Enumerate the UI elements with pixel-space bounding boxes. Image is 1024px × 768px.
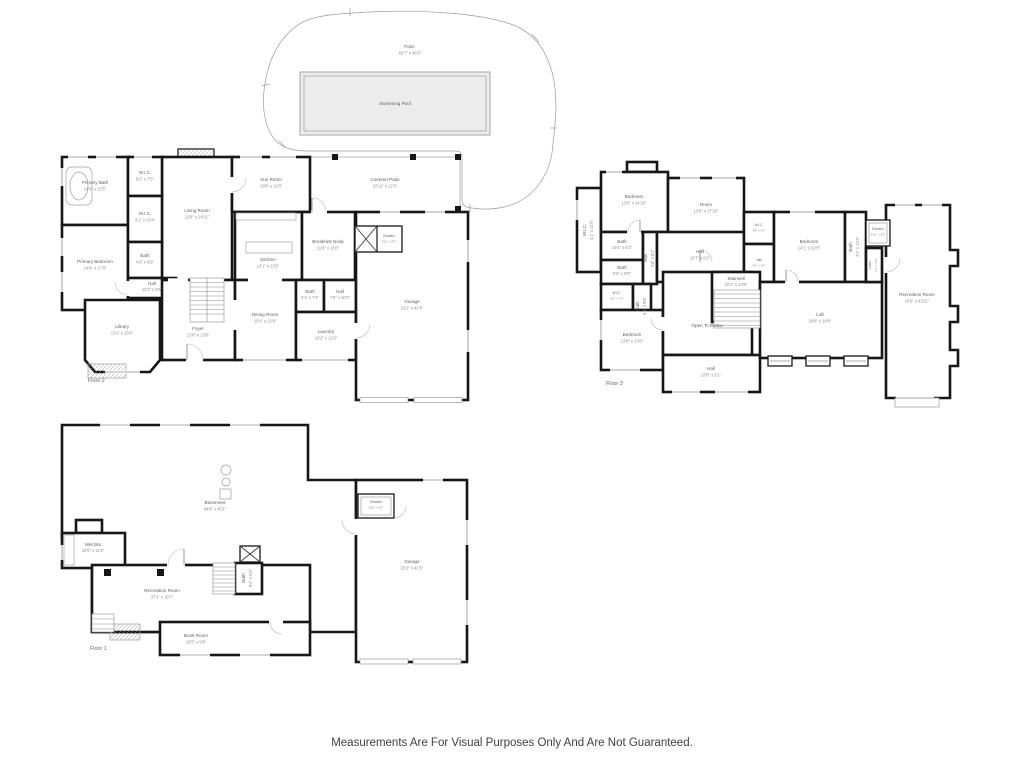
f2-elevator-label: Elevator6'10" x 5'4" (382, 234, 397, 244)
floor1-label: Floor 1 (90, 646, 107, 652)
f3-elevator-label: Elevator6'10" x 5'4" (871, 227, 886, 237)
water-heater-icon (221, 465, 231, 475)
f3-hall-vert-dims: 2'8" x 8'1" (650, 249, 655, 267)
f3-loft-bays (768, 356, 868, 366)
f2-living-room-label: Living Room13'8" x 24'11" (184, 208, 210, 220)
floor-plan-canvas: Patio 65'7" x 46'5" Swimming Pool (0, 0, 1024, 768)
f3-bedroom-a-label: Bedroom13'0" x 14'10" (622, 194, 647, 206)
f3-bath-bl-dims: 5'1" x 9'9" (642, 297, 647, 315)
f1-bath-dims: 9'2" x 5'8" (248, 569, 253, 587)
f3-bedroom-c-label: Bedroom13'8" x 13'0" (621, 332, 644, 344)
f3-linen-label: Linen (868, 261, 872, 269)
f1-corner-steps (92, 614, 114, 632)
f3-wic-left-label: W.I.C. (582, 224, 587, 237)
f3-hall-vert-label: Hall (643, 254, 648, 262)
f3-stairwell-label: Stairwell10'1" x 13'8" (725, 276, 748, 287)
utility-box-icon (220, 489, 231, 499)
f3-bedroom-b-label: Bedroom14'1" x 13'0" (798, 239, 821, 251)
f2-covered-patio-label: Covered Patio23'11" x 12'0" (370, 177, 400, 189)
disclaimer-text: Measurements Are For Visual Purposes Onl… (331, 737, 693, 749)
f3-wic-left-dims: 4'1" x 12'5" (589, 219, 594, 240)
f1-basement-label: Basement84'9" x 45'1" (204, 500, 227, 512)
wet-bar-counter (64, 535, 74, 565)
swimming-pool-label: Swimming Pool (379, 101, 411, 106)
kitchen-counter (236, 213, 296, 220)
f1-elevator-label: Elevator6'10" x 5'4" (369, 500, 384, 510)
f1-bunk-room-label: Bunk Room19'5" x 9'8" (184, 633, 208, 645)
f2-dining-room-label: Dining Room13'4" x 13'9" (252, 312, 279, 324)
f3-bath-vert-label: Bath (848, 242, 853, 252)
f1-bath-label: Bath (241, 573, 246, 583)
f1-bunk-room (160, 622, 310, 655)
floor-plan-page: Patio 65'7" x 46'5" Swimming Pool (0, 0, 1024, 768)
floor2-label: Floor 2 (88, 378, 105, 384)
background (0, 0, 1024, 768)
floor3-label: Floor 3 (606, 381, 623, 387)
f2-sun-room-label: Sun Room19'8" x 11'8" (260, 177, 283, 189)
f3-linen-dims: 2'6" x 7'10" (874, 258, 878, 273)
f1-mech-closet (240, 546, 260, 562)
f2-primary-bath-label: Primary Bath14'8" x 13'5" (82, 180, 109, 192)
f1-stairs (213, 563, 235, 594)
f3-bath-bl-label: Bath (635, 301, 640, 311)
kitchen-island (246, 242, 292, 253)
f3-chimney (627, 162, 657, 172)
f3-bath-vert-dims: 4'1" x 13'2" (855, 236, 860, 257)
hvac-icon (222, 478, 230, 486)
f3-open-to-below-label: Open To Below (691, 323, 723, 328)
f2-stairs (190, 278, 224, 322)
f1-stoop (110, 624, 140, 640)
f2-library (85, 300, 160, 372)
f1-wet-bar-closet (76, 520, 102, 533)
